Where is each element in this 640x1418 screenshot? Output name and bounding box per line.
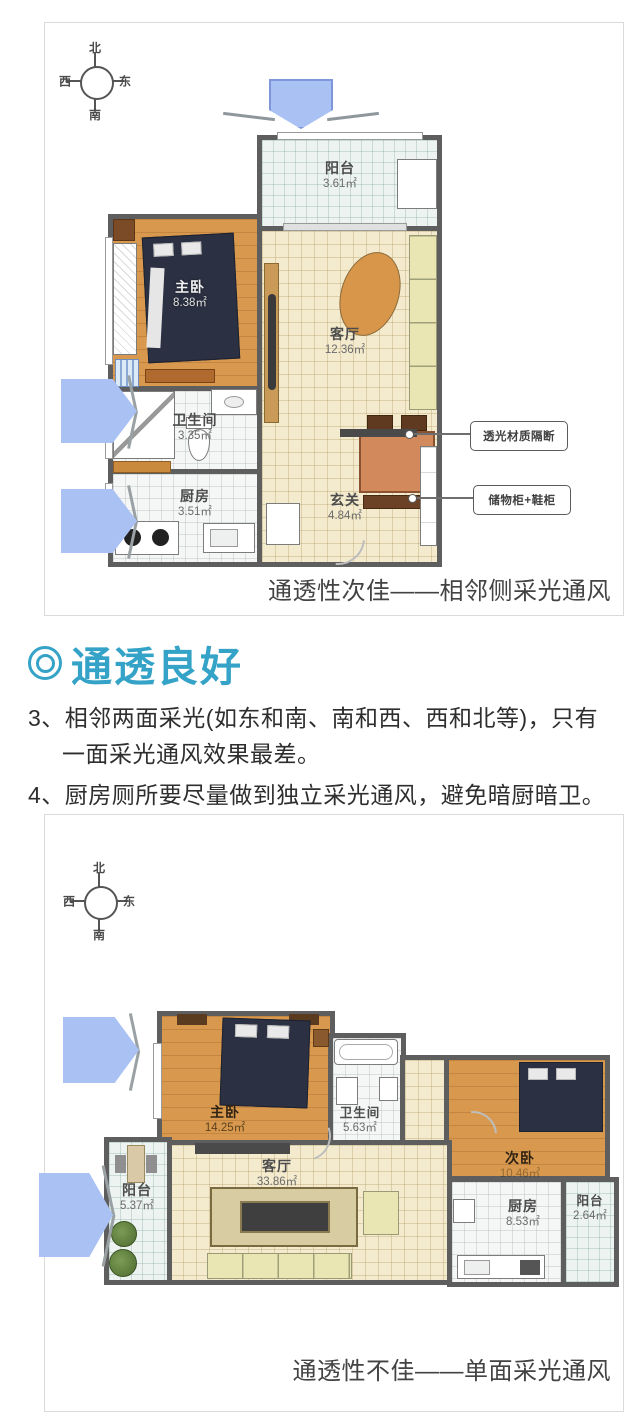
compass-south-label: 南 [93, 926, 105, 943]
bedside-cabinet [113, 219, 135, 241]
fridge [453, 1199, 475, 1223]
room-label-kitchen: 厨房 8.53㎡ [493, 1197, 553, 1230]
compass-ring-icon [80, 66, 114, 100]
washing-machine [397, 159, 437, 209]
compass-north-label: 北 [93, 859, 105, 876]
room-label-balcony: 阳台 3.61㎡ [295, 159, 385, 192]
callout-anchor-dot [408, 494, 417, 503]
article-section: 通透良好 3、相邻两面采光(如东和南、南和西、西和北等)，只有一面采光通风效果最… [28, 636, 614, 818]
floor-plan-panel-single: 北 南 西 东 [44, 814, 624, 1412]
double-circle-icon [28, 646, 62, 680]
plant [111, 1221, 137, 1247]
plant [109, 1249, 137, 1277]
bathroom-sink [379, 1077, 398, 1101]
wind-arrow-wing [223, 112, 275, 121]
article-point: 3、相邻两面采光(如东和南、南和西、西和北等)，只有一面采光通风效果最差。 [28, 700, 614, 772]
sofa [409, 235, 437, 410]
section-heading: 通透良好 [28, 636, 614, 690]
plan2-caption: 通透性不佳——单面采光通风 [293, 1351, 612, 1386]
room-label-bathroom: 卫生间 5.63㎡ [323, 1105, 397, 1136]
dresser [145, 369, 215, 383]
compass: 北 南 西 东 [59, 39, 131, 123]
bed [519, 1062, 603, 1132]
room-label-balcony-left: 阳台 5.37㎡ [107, 1181, 167, 1214]
room-label-master: 主卧 14.25㎡ [180, 1103, 270, 1136]
bed [219, 1017, 310, 1108]
room-label-second: 次卧 10.46㎡ [475, 1149, 565, 1182]
room-label-bathroom: 卫生间 3.35㎡ [155, 411, 235, 444]
radiator [115, 359, 139, 387]
wardrobe [177, 1014, 207, 1025]
compass-west-label: 西 [63, 893, 75, 910]
tv-console [264, 263, 279, 423]
entry-cabinet [266, 503, 300, 545]
compass-ring-icon [84, 886, 118, 920]
kitchen-sink [203, 523, 255, 553]
callout-cabinet: 储物柜+鞋柜 [473, 485, 571, 515]
wind-arrow-down-icon [269, 79, 333, 129]
tv-bench [195, 1143, 290, 1154]
sofa [207, 1253, 352, 1279]
room-label-balcony-right: 阳台 2.64㎡ [563, 1193, 617, 1224]
coffee-table [240, 1201, 330, 1233]
room-label-living: 客厅 12.36㎡ [295, 325, 395, 358]
window [153, 1043, 162, 1119]
wind-arrow-right-icon [39, 1173, 113, 1257]
compass-west-label: 西 [59, 73, 71, 90]
plan1-caption: 通透性次佳——相邻侧采光通风 [268, 571, 611, 606]
callout-leader-line [417, 497, 473, 499]
wind-arrow-right-icon [63, 1017, 139, 1083]
compass-east-label: 东 [119, 73, 131, 90]
wind-arrow-wing [327, 112, 379, 121]
room-label-kitchen: 厨房 3.51㎡ [155, 487, 235, 520]
toilet [336, 1077, 358, 1105]
armchair [363, 1191, 399, 1235]
balcony-chair [146, 1155, 157, 1173]
balcony-chair [115, 1155, 126, 1173]
sliding-door [283, 223, 407, 231]
room-label-entry: 玄关 4.84㎡ [300, 491, 390, 524]
compass-east-label: 东 [123, 893, 135, 910]
room-label-living: 客厅 33.86㎡ [232, 1157, 322, 1190]
balcony-table [127, 1145, 145, 1183]
compass-south-label: 南 [89, 106, 101, 123]
tv [268, 294, 276, 390]
shoe-cabinet [420, 446, 437, 546]
callout-leader-line [414, 433, 470, 435]
article-point: 4、厨房厕所要尽量做到独立采光通风，避免暗厨暗卫。 [28, 777, 614, 813]
window [277, 132, 423, 140]
callout-partition: 透光材质隔断 [470, 421, 568, 451]
wardrobe [113, 243, 137, 355]
section-heading-title: 通透良好 [71, 633, 243, 693]
bath-shelf [113, 461, 171, 473]
living-rug [210, 1187, 358, 1247]
kitchen-counter [457, 1255, 545, 1279]
compass-north-label: 北 [89, 39, 101, 56]
nightstand [313, 1029, 329, 1047]
compass: 北 南 西 东 [63, 859, 135, 943]
floor-plan-panel-adjacent: 北 南 西 东 [44, 22, 624, 616]
callout-anchor-dot [405, 430, 414, 439]
room-label-master: 主卧 8.38㎡ [145, 278, 235, 311]
bathtub [334, 1039, 398, 1065]
window [105, 237, 113, 365]
